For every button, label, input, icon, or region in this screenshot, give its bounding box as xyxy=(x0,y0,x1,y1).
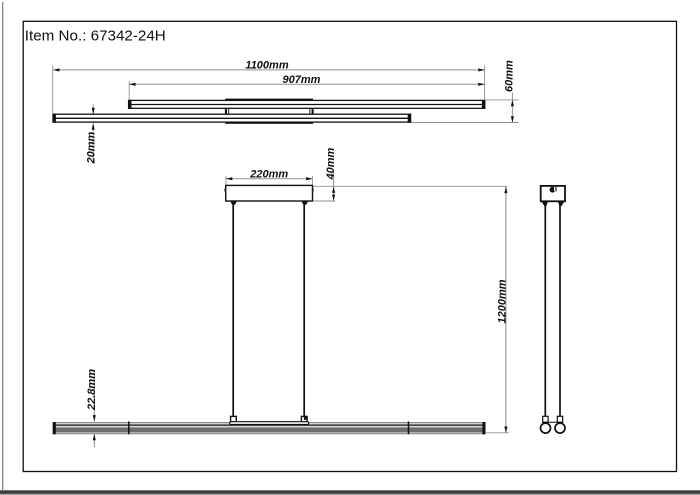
svg-text:22.8mm: 22.8mm xyxy=(86,369,98,411)
svg-text:220mm: 220mm xyxy=(249,168,288,180)
svg-text:60mm: 60mm xyxy=(504,60,516,92)
svg-text:907mm: 907mm xyxy=(283,74,321,86)
svg-text:40mm: 40mm xyxy=(325,147,337,180)
svg-text:1200mm: 1200mm xyxy=(496,279,508,323)
svg-text:20mm: 20mm xyxy=(85,131,97,164)
svg-text:Item No.: 67342-24H: Item No.: 67342-24H xyxy=(25,27,166,44)
svg-text:1100mm: 1100mm xyxy=(245,60,288,72)
